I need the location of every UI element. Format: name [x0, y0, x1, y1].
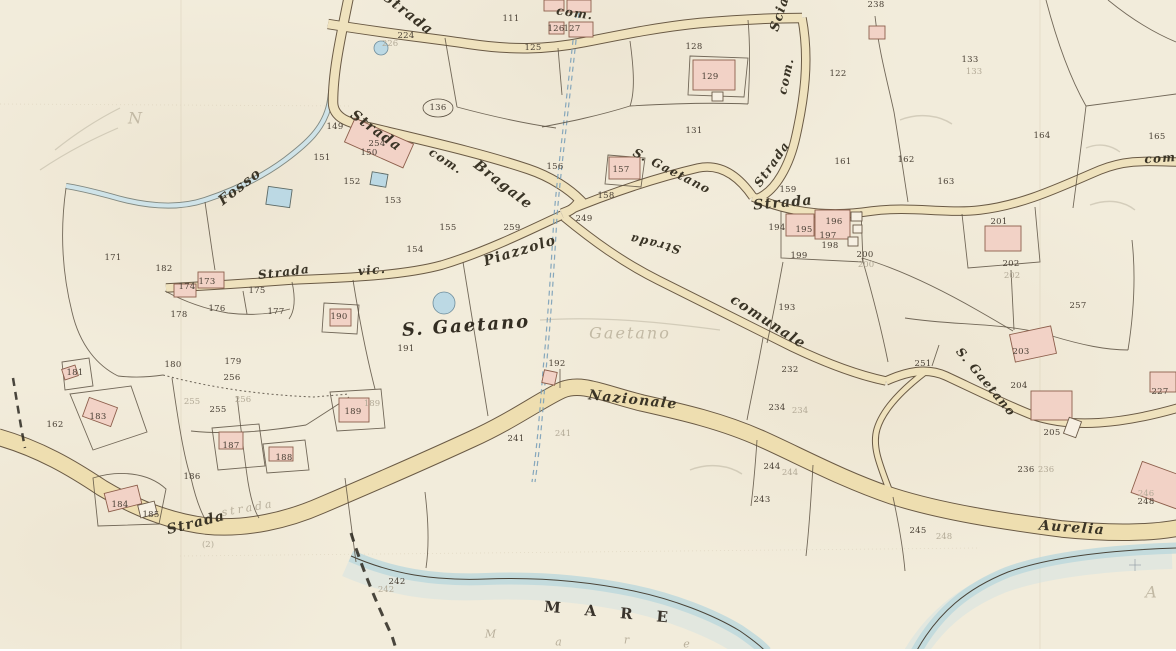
parcel-number-149: 149	[326, 122, 343, 132]
parcel-number-249: 249	[575, 214, 592, 224]
building	[712, 92, 723, 101]
parcel-number-133: 133	[961, 55, 978, 65]
parcel-number-165: 165	[1148, 132, 1165, 142]
pencil-note-248: 248	[936, 532, 952, 542]
parcel-number-194: 194	[768, 223, 785, 233]
building	[1031, 391, 1072, 420]
parcel-number-129: 129	[701, 72, 718, 82]
parcel-number-155: 155	[439, 223, 456, 233]
pencil-note--2-: (2)	[202, 540, 214, 550]
water-cistern	[370, 172, 388, 188]
parcel-number-177: 177	[267, 307, 284, 317]
pencil-note-234: 234	[792, 406, 808, 416]
pencil-note-a: a	[555, 636, 565, 649]
place-label-vic-: vic.	[357, 262, 386, 278]
parcel-number-126: 126	[547, 24, 564, 34]
parcel-number-186: 186	[183, 472, 200, 482]
parcel-number-184: 184	[111, 500, 128, 510]
parcel-number-187: 187	[222, 441, 239, 451]
parcel-number-234: 234	[768, 403, 785, 413]
pencil-note-226: 226	[382, 39, 398, 49]
parcel-number-243: 243	[753, 495, 770, 505]
parcel-number-182: 182	[155, 264, 172, 274]
parcel-number-198: 198	[821, 241, 838, 251]
pencil-note-a: A	[1145, 583, 1159, 602]
parcel-number-201: 201	[990, 217, 1007, 227]
parcel-number-232: 232	[781, 365, 798, 375]
parcel-number-199: 199	[790, 251, 807, 261]
parcel-number-164: 164	[1033, 131, 1050, 141]
parcel-number-125: 125	[524, 43, 541, 53]
parcel-number-162: 162	[46, 420, 63, 430]
parcel-number-236: 236	[1017, 465, 1034, 475]
parcel-number-152: 152	[343, 177, 360, 187]
parcel-number-163: 163	[937, 177, 954, 187]
pencil-note-256: 256	[235, 395, 251, 405]
parcel-number-111: 111	[502, 14, 519, 24]
parcel-number-158: 158	[597, 191, 614, 201]
parcel-number-131: 131	[685, 126, 702, 136]
parcel-number-224: 224	[397, 31, 414, 41]
pencil-note-242: 242	[378, 585, 394, 595]
pencil-note-200: 200	[858, 260, 874, 270]
parcel-number-191: 191	[397, 344, 414, 354]
building	[851, 212, 862, 221]
pencil-note-m: M	[485, 628, 499, 641]
building	[848, 237, 858, 246]
pencil-note-189: 189	[364, 399, 380, 409]
parcel-number-173: 173	[198, 277, 215, 287]
parcel-number-256: 256	[223, 373, 240, 383]
parcel-number-183: 183	[89, 412, 106, 422]
pencil-note-133: 133	[966, 67, 982, 77]
parcel-number-203: 203	[1012, 347, 1029, 357]
parcel-number-179: 179	[224, 357, 241, 367]
parcel-number-178: 178	[170, 310, 187, 320]
parcel-number-189: 189	[344, 407, 361, 417]
cadastral-map-sheet: Stradacom.Sciacom.Stradacom.BragaleS. Ga…	[0, 0, 1176, 649]
parcel-number-257: 257	[1069, 301, 1086, 311]
pencil-note-244: 244	[782, 468, 798, 478]
parcel-number-157: 157	[612, 165, 629, 175]
parcel-number-128: 128	[685, 42, 702, 52]
parcel-number-151: 151	[313, 153, 330, 163]
parcel-number-238: 238	[867, 0, 884, 10]
pond	[433, 292, 455, 314]
pencil-note-gaetano: Gaetano	[589, 324, 671, 343]
parcel-number-171: 171	[104, 253, 121, 263]
parcel-number-192: 192	[548, 359, 565, 369]
building	[853, 225, 862, 233]
pencil-note-n: N	[128, 109, 144, 128]
sea-shoreline	[347, 548, 1176, 649]
parcel-number-150: 150	[360, 148, 377, 158]
parcel-number-159: 159	[779, 185, 796, 195]
parcel-number-196: 196	[825, 217, 842, 227]
parcel-number-185: 185	[142, 510, 159, 520]
parcel-number-204: 204	[1010, 381, 1027, 391]
building	[542, 370, 557, 385]
parcel-number-190: 190	[330, 312, 347, 322]
pencil-note-246: 246	[1138, 489, 1154, 499]
parcel-number-188: 188	[275, 453, 292, 463]
parcel-number-244: 244	[763, 462, 780, 472]
building	[985, 226, 1021, 251]
parcel-number-162: 162	[897, 155, 914, 165]
pencil-note-241: 241	[555, 429, 571, 439]
parcel-number-127: 127	[563, 24, 580, 34]
parcel-number-202: 202	[1002, 259, 1019, 269]
pencil-note-r: r	[624, 634, 632, 647]
parcel-number-176: 176	[208, 304, 225, 314]
parcel-number-175: 175	[248, 286, 265, 296]
parcel-number-227: 227	[1151, 387, 1168, 397]
fence-line	[163, 375, 349, 397]
pencil-note-236: 236	[1038, 465, 1054, 475]
parcel-number-255: 255	[209, 405, 226, 415]
parcel-number-154: 154	[406, 245, 423, 255]
parcel-number-180: 180	[164, 360, 181, 370]
parcel-number-241: 241	[507, 434, 524, 444]
pencil-note-202: 202	[1004, 271, 1020, 281]
parcel-number-197: 197	[819, 231, 836, 241]
place-label-com-: com.	[1144, 150, 1176, 167]
parcel-number-193: 193	[778, 303, 795, 313]
parcel-number-200: 200	[856, 250, 873, 260]
parcel-number-174: 174	[178, 282, 195, 292]
parcel-number-195: 195	[795, 225, 812, 235]
road-casings	[0, 0, 1176, 532]
parcel-number-251: 251	[914, 359, 931, 369]
parcel-number-153: 153	[384, 196, 401, 206]
parcel-number-156: 156	[546, 162, 563, 172]
parcel-number-136: 136	[429, 103, 446, 113]
road-fills	[0, 0, 1176, 532]
parcel-number-259: 259	[503, 223, 520, 233]
parcel-number-161: 161	[834, 157, 851, 167]
parcel-number-181: 181	[66, 368, 83, 378]
map-drawing-layer	[0, 0, 1176, 649]
pencil-note-255: 255	[184, 397, 200, 407]
parcel-number-205: 205	[1043, 428, 1060, 438]
parcel-number-245: 245	[909, 526, 926, 536]
water-cistern	[266, 186, 292, 207]
parcel-number-122: 122	[829, 69, 846, 79]
building	[869, 26, 885, 39]
